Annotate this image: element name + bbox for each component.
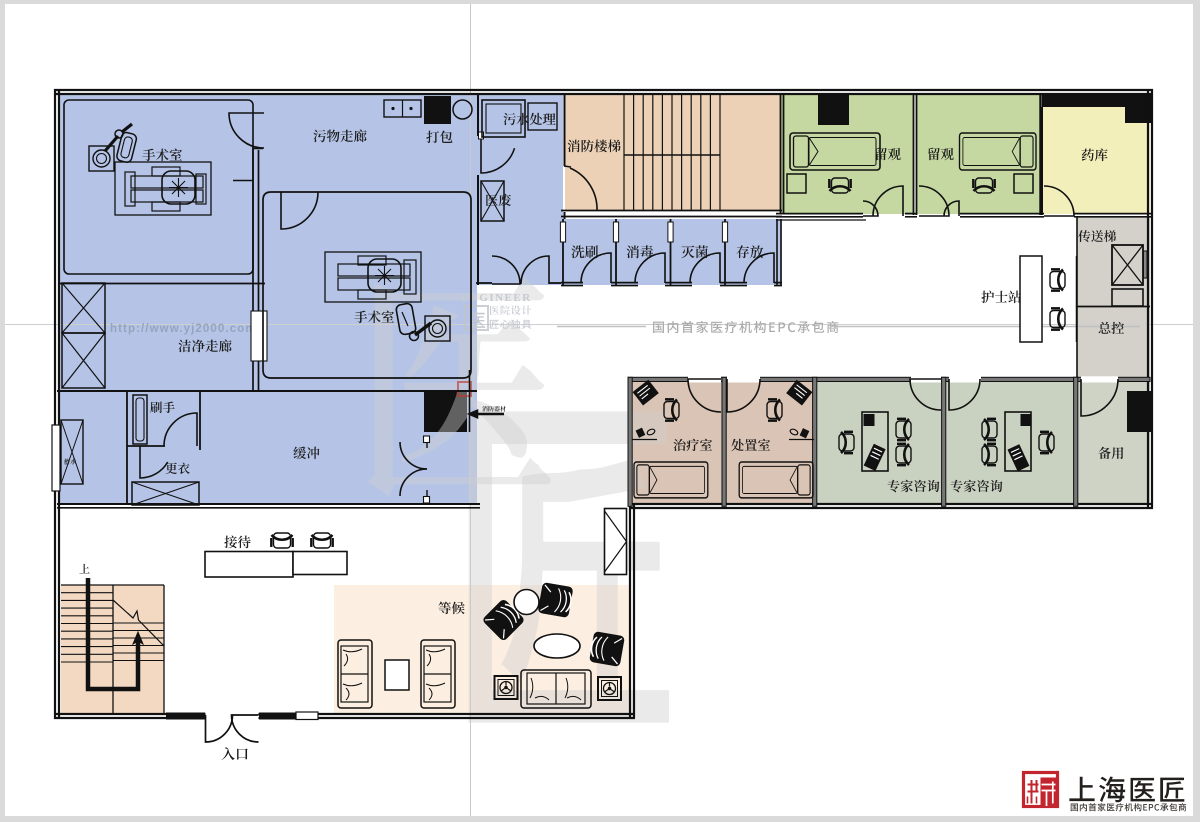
svg-text:http://www.yj2000.com: http://www.yj2000.com xyxy=(110,323,257,335)
